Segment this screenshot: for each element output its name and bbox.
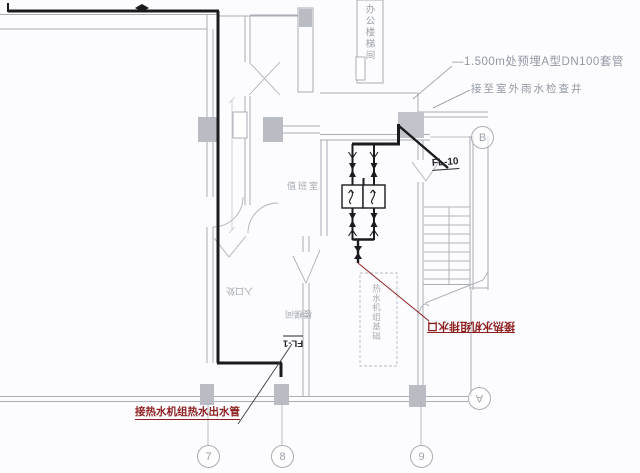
grid-bubble-b: B xyxy=(471,126,494,149)
hot-water-outlet-label: 接热水机组热水出水管 xyxy=(135,407,240,420)
sleeve-annotation: —1.500m处预埋A型DN100套管 xyxy=(452,57,624,69)
wall-lines xyxy=(0,0,488,402)
grid-bubble-9: 9 xyxy=(410,445,433,468)
heat-pump-units xyxy=(342,185,385,208)
floor-plan-drawing: —1.500m处预埋A型DN100套管 接至室外雨水检查井 FL-10 FL-1… xyxy=(0,0,640,473)
double-door-x xyxy=(249,62,280,95)
pad-label: 热水机组基础 xyxy=(372,284,381,354)
room-label-stair: 楼梯间 xyxy=(285,309,312,318)
door-arc-upper xyxy=(248,203,278,233)
shaft-label: 办公楼梯间 xyxy=(364,4,374,80)
grid-bubble-8: 8 xyxy=(271,445,294,468)
room-label-duty: 值班室 xyxy=(287,182,320,191)
door-v-midroom xyxy=(293,250,320,283)
grid-bubble-7: 7 xyxy=(197,445,220,468)
note-leaders xyxy=(413,66,470,108)
room-label-entry: 入口处 xyxy=(226,286,253,295)
outdoor-annotation: 接至室外雨水检查井 xyxy=(471,84,584,95)
stair-treads xyxy=(419,207,488,312)
grid-bubble-a: A xyxy=(468,387,491,410)
plan-linework xyxy=(0,0,640,473)
riser-label-fl1: FL-1 xyxy=(283,336,303,348)
drain-outlet-label: 接热水机组排水口 xyxy=(427,320,515,333)
riser-label-fl10: FL-10 xyxy=(432,157,459,171)
